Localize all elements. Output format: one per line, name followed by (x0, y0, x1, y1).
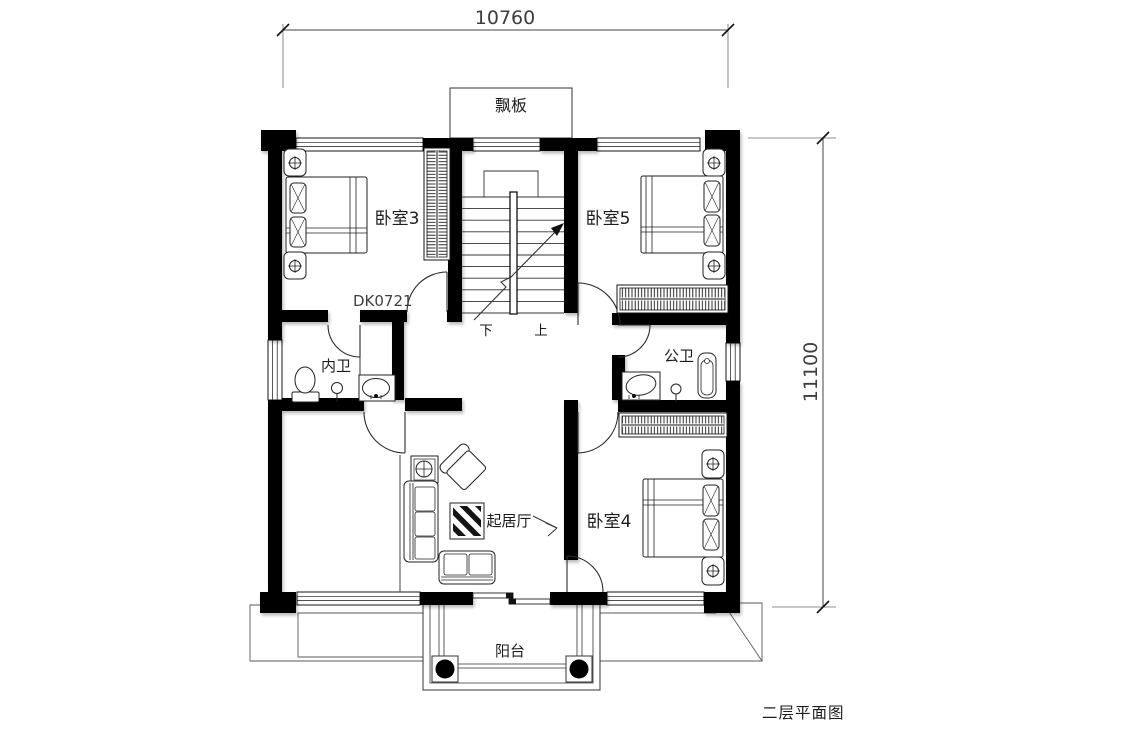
drawing-caption: 二层平面图 (762, 704, 845, 722)
bath-private-label: 内卫 (321, 357, 351, 375)
width-dimension-label: 10760 (475, 7, 535, 29)
bath-public-label: 公卫 (664, 347, 694, 365)
living-label-leader (533, 516, 557, 536)
wardrobe-bedroom5 (617, 285, 728, 313)
door-bedroom4-hall (578, 412, 618, 453)
bedroom3-furniture (284, 149, 367, 279)
sofa-three-seat (404, 481, 438, 562)
armchair (438, 442, 488, 492)
bedroom5-label: 卧室5 (586, 209, 631, 229)
staircase (462, 171, 564, 320)
door-bedroom3 (407, 272, 447, 312)
wardrobe-bedroom3 (424, 148, 450, 260)
toilet (698, 353, 716, 398)
top-dimension (277, 24, 734, 88)
living-room-furniture (400, 442, 557, 592)
bedroom5-furniture (641, 149, 725, 279)
floor-drain (671, 384, 681, 402)
wardrobe-bedroom4 (619, 413, 727, 437)
balcony-label: 阳台 (495, 642, 525, 660)
window-bedroom4-bottom (607, 592, 704, 605)
window-bedroom3-top (296, 138, 423, 151)
plant-stand (411, 456, 438, 483)
balcony-sliding-door (473, 593, 550, 605)
depth-dimension-label: 11100 (800, 342, 822, 402)
window-bottom-left (297, 592, 420, 605)
window-bath-public-right (726, 343, 740, 381)
right-dimension (748, 132, 836, 613)
sink (359, 375, 395, 401)
balcony-column (436, 660, 455, 679)
window-bedroom5-top (597, 138, 700, 151)
stairs-down-label: 下 (479, 323, 493, 339)
balcony-column (570, 660, 589, 679)
coffee-table (450, 503, 484, 539)
sofa-two-seat (439, 551, 495, 584)
floor-plan-page: 10760 11100 飘板 阳台 (0, 0, 1134, 752)
bedroom4-furniture (643, 450, 724, 585)
stairs-up-label: 上 (534, 323, 548, 339)
floor-plan-drawing: 10760 11100 飘板 阳台 (0, 0, 1134, 752)
door-bath-private (328, 325, 360, 357)
canopy-label: 飘板 (495, 96, 527, 115)
bedroom4-label: 卧室4 (587, 512, 632, 532)
stair-rail (510, 192, 517, 314)
living-label: 起居厅 (486, 512, 531, 530)
door-bedroom4-living (567, 556, 603, 592)
bedroom3-label: 卧室3 (375, 209, 420, 229)
sink (622, 372, 660, 400)
door-storeroom (364, 412, 405, 453)
toilet (292, 367, 319, 402)
window-bath-private-left (268, 340, 282, 400)
window-stair-top (473, 138, 540, 151)
door-bath-public (618, 325, 650, 357)
door-code-label: DK0721 (353, 292, 413, 310)
